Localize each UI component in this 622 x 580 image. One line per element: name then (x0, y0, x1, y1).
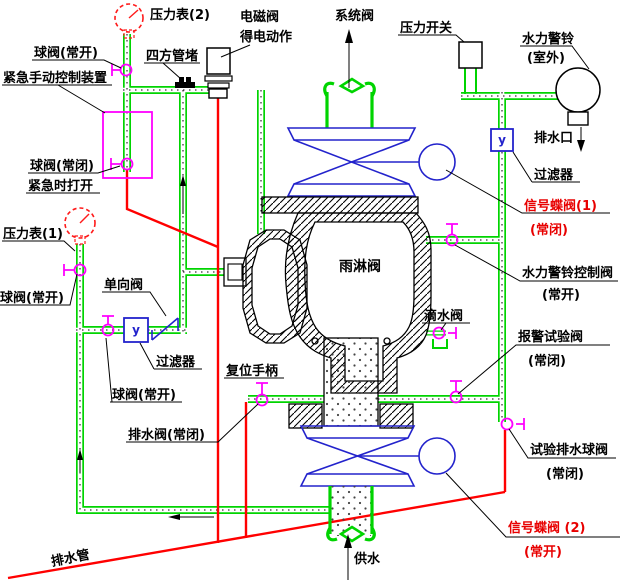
filter-left-label: 过滤器 (156, 354, 196, 370)
drip-valve-icon (433, 327, 456, 348)
alarm-test-valve-label-1: 报警试验阀 (518, 329, 583, 345)
system-outlet-pipe (325, 29, 374, 128)
bottom-flange-left (289, 404, 322, 428)
butterfly-actuator-1-icon (419, 144, 455, 180)
drip-valve-label: 滴水阀 (424, 308, 463, 324)
deluge-valve-label: 雨淋阀 (339, 258, 381, 275)
ball-valve-nc-label-2: 紧急时打开 (28, 178, 93, 194)
flow-arrow-left-icon (168, 514, 180, 520)
drain-valve-nc-label: 排水阀(常闭) (128, 427, 205, 443)
system-flow-arrow (345, 29, 353, 43)
strainer-left-symbol: y (132, 323, 140, 337)
ball-valve-nc-label-1: 球阀(常闭) (30, 158, 94, 174)
alarm-control-valve-label-2: (常开) (542, 287, 580, 303)
system-valve-label: 系统阀 (335, 8, 374, 24)
deluge-valve-diagram: y y (0, 0, 622, 580)
signal-butterfly-2-label-2: (常开) (524, 544, 562, 560)
test-drain-valve-icon (502, 418, 525, 430)
bolt-icon (384, 338, 390, 344)
signal-butterfly-1-label-2: (常闭) (530, 222, 568, 238)
reset-handle-label: 复位手柄 (225, 363, 278, 379)
pressure-switch-drop-pipes (465, 68, 476, 94)
ball-valve-mid-label: 球阀(常开) (112, 387, 176, 403)
pressure-gauge-1-label: 压力表(1) (3, 226, 63, 242)
signal-butterfly-1-label-1: 信号蝶阀(1) (524, 198, 597, 214)
filter-right-label: 过滤器 (534, 167, 574, 183)
strainer-right-icon: y (491, 129, 513, 151)
pressure-switch-icon (459, 42, 482, 68)
bottom-flange-right (380, 404, 413, 428)
alarm-bell-label-2: (室外) (527, 50, 565, 66)
drain-pipe-label: 排水管 (50, 547, 91, 570)
deluge-valve-body (224, 197, 431, 428)
check-valve-label: 单向阀 (104, 277, 143, 293)
ball-valve-left-label: 球阀(常开) (0, 290, 64, 306)
pressure-switch-label: 压力开关 (400, 20, 452, 36)
solenoid-valve-label-2: 得电动作 (239, 29, 292, 45)
water-supply-label: 供水 (353, 551, 381, 567)
emergency-drain-pipe (127, 170, 218, 247)
signal-butterfly-valve-2-symbol (301, 426, 455, 486)
pressure-gauge-1-icon (65, 208, 95, 244)
signal-butterfly-2-label-1: 信号蝶阀 (2) (508, 520, 585, 536)
butterfly-actuator-2-icon (419, 438, 455, 474)
square-pipe-plug-label: 四方管堵 (146, 48, 198, 64)
drain-outlet-arrow (577, 140, 585, 152)
strainer-left-icon: y (124, 318, 148, 342)
alarm-test-valve-label-2: (常闭) (528, 353, 566, 369)
leader-lines (0, 35, 620, 537)
pipe-break-symbol-top (341, 79, 363, 92)
diaphragm-chamber (243, 230, 307, 343)
strainer-right-symbol: y (498, 133, 506, 147)
valve-seat-column (324, 338, 378, 426)
drain-outlet-label: 排水口 (534, 130, 573, 146)
pressure-gauge-2-icon (115, 4, 143, 38)
alarm-control-valve-label-1: 水力警铃控制阀 (522, 265, 613, 281)
flow-arrows (77, 175, 214, 520)
square-pipe-plug-icon (175, 77, 195, 88)
test-drain-valve-label-2: (常闭) (546, 466, 584, 482)
top-flange (262, 197, 418, 213)
signal-butterfly-valve-1-symbol (288, 128, 455, 196)
ball-valve-top-label: 球阀(常开) (34, 45, 98, 61)
test-drain-valve-label-1: 试验排水球阀 (530, 442, 608, 458)
emergency-device-label: 紧急手动控制装置 (3, 70, 107, 86)
solenoid-valve-icon (205, 48, 232, 98)
alarm-bell-label-1: 水力警铃 (522, 31, 574, 47)
pressure-gauge-2-label: 压力表(2) (150, 7, 210, 23)
diagram-canvas: y y (0, 0, 622, 580)
solenoid-valve-label-1: 电磁阀 (240, 9, 279, 25)
